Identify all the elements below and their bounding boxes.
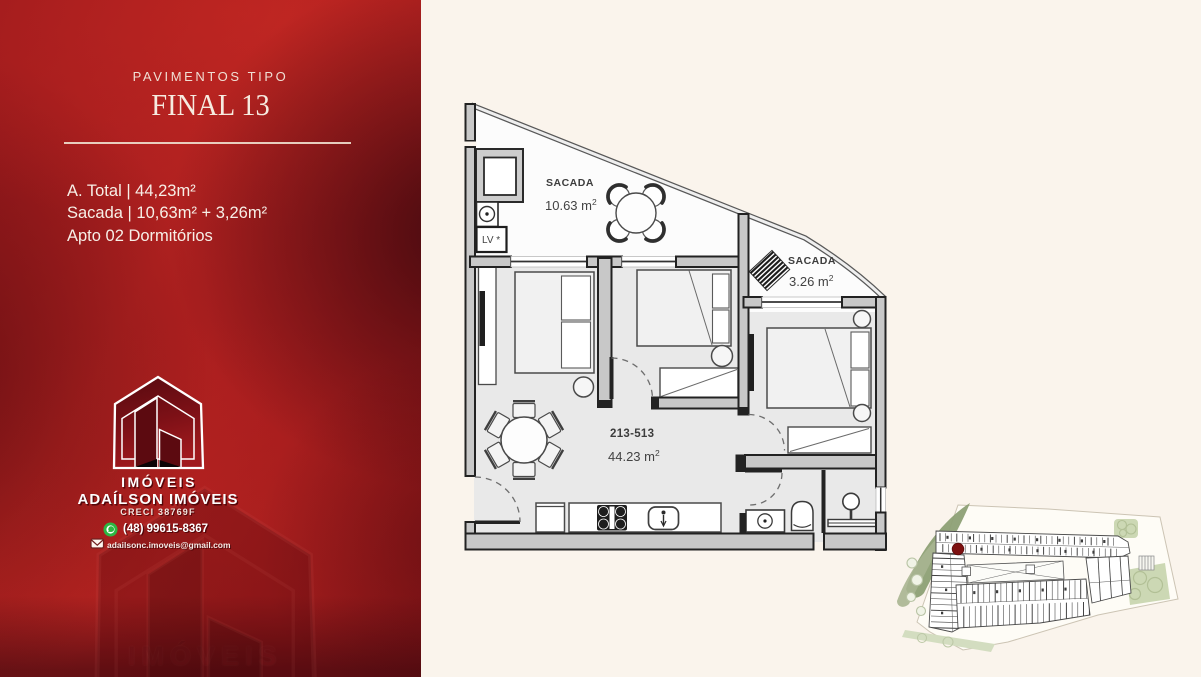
svg-text:213-513: 213-513: [610, 428, 654, 440]
svg-text:3.26 m2: 3.26 m2: [789, 273, 834, 289]
svg-text:10.63 m2: 10.63 m2: [545, 197, 597, 213]
svg-text:44.23 m2: 44.23 m2: [608, 448, 660, 464]
svg-text:LV *: LV *: [482, 235, 500, 246]
svg-text:SACADA: SACADA: [788, 255, 836, 267]
svg-text:SACADA: SACADA: [546, 177, 594, 189]
